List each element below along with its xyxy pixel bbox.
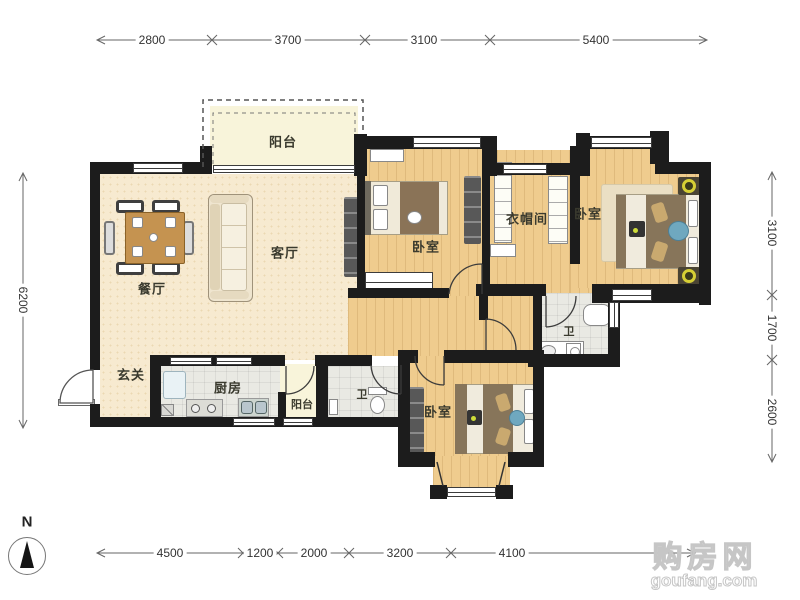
dim-bottom-2: 1200 [244, 546, 277, 560]
door-arc-bedroom-bottom [415, 356, 444, 385]
dim-right-3: 2600 [765, 396, 779, 429]
room-label-bathroom-main: 卫 [564, 323, 575, 339]
dim-top-2: 3700 [272, 33, 305, 47]
watermark-site-name: 购房网 [653, 532, 758, 576]
room-label-cloakroom: 衣帽间 [506, 209, 548, 228]
dim-right-2: 1700 [765, 312, 779, 345]
dimension-line-top [97, 35, 707, 45]
room-label-living: 客厅 [271, 243, 299, 262]
dim-left-1: 6200 [16, 284, 30, 317]
room-label-kitchen: 厨房 [214, 378, 242, 397]
room-label-balcony-top: 阳台 [269, 132, 297, 151]
dim-right-1: 3100 [765, 217, 779, 250]
door-arc-bedroom-middle [449, 264, 482, 294]
door-arc-back-hall [486, 319, 516, 350]
room-label-bedroom-middle: 卧室 [412, 237, 440, 256]
dim-bottom-4: 3200 [384, 546, 417, 560]
room-label-dining: 餐厅 [138, 279, 166, 298]
watermark-site-domain: goufang.com [651, 571, 758, 591]
bay-window-sides [437, 462, 505, 486]
room-label-bedroom-bottom: 卧室 [424, 402, 452, 421]
door-arc-balcony [286, 366, 314, 394]
dim-top-3: 3100 [408, 33, 441, 47]
room-label-balcony-bottom: 阳台 [291, 396, 313, 412]
room-label-bedroom-right: 卧室 [574, 204, 602, 223]
dim-top-4: 5400 [580, 33, 613, 47]
dim-top-1: 2800 [136, 33, 169, 47]
dim-bottom-1: 4500 [154, 546, 187, 560]
room-label-bathroom-second: 卫 [357, 386, 368, 402]
plan-linework [0, 0, 800, 600]
dim-bottom-3: 2000 [298, 546, 331, 560]
floor-plan: 阳台 客厅 餐厅 玄关 厨房 阳台 卫 卫 衣帽间 卧室 卧室 卧室 2800 … [0, 0, 800, 600]
room-label-entry: 玄关 [117, 365, 145, 384]
compass-north-label: N [22, 514, 33, 531]
dim-bottom-5: 4100 [496, 546, 529, 560]
compass-needle-icon [20, 541, 34, 568]
door-arc-bath-second [371, 365, 401, 394]
entrance-door-arc [60, 370, 93, 403]
